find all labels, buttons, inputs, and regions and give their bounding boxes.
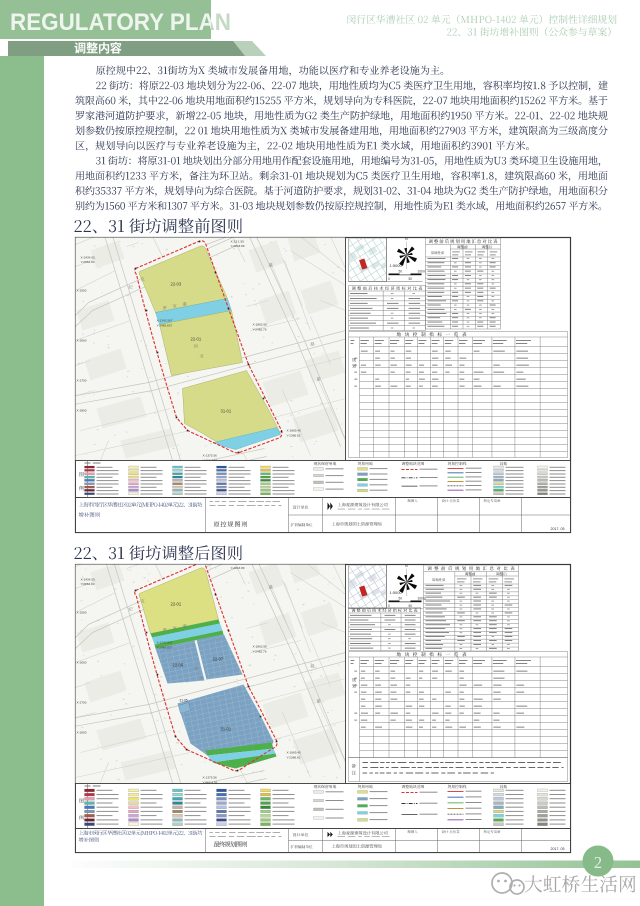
svg-text:X-2434.50: X-2434.50 [81, 578, 96, 582]
svg-text:31-05: 31-05 [180, 699, 188, 703]
svg-text:22-01: 22-01 [171, 602, 182, 607]
svg-text:X-1863.56: X-1863.56 [253, 645, 268, 649]
svg-text:50: 50 [409, 604, 413, 608]
svg-text:X-1242.567: X-1242.567 [157, 641, 173, 645]
svg-text:Y-2862.00: Y-2862.00 [81, 260, 95, 264]
svg-text:Y-2386.62: Y-2386.62 [287, 756, 301, 760]
svg-text:Y-2843.89: Y-2843.89 [231, 566, 245, 570]
svg-text:X-2600: X-2600 [77, 339, 87, 343]
svg-text:22-07: 22-07 [213, 657, 224, 662]
svg-text:N: N [405, 237, 408, 241]
svg-text:X-23.1.50: X-23.1.50 [231, 240, 245, 244]
svg-text:X-1242.567: X-1242.567 [157, 319, 173, 323]
svg-text:X-2800: X-2800 [77, 409, 87, 413]
svg-text:0: 0 [388, 604, 390, 608]
svg-text:0: 0 [388, 277, 390, 281]
svg-text:X-2500: X-2500 [77, 289, 87, 293]
svg-text:X-1865.45: X-1865.45 [287, 751, 302, 755]
svg-text:50: 50 [399, 596, 403, 600]
svg-text:Y-2843.89: Y-2843.89 [231, 244, 245, 248]
svg-text:Y-2465.837: Y-2465.837 [157, 646, 173, 650]
svg-text:1:5000: 1:5000 [390, 590, 403, 595]
svg-text:22-03: 22-03 [171, 282, 182, 287]
svg-text:50: 50 [399, 269, 403, 273]
svg-text:Y-2862.00: Y-2862.00 [81, 582, 95, 586]
svg-text:2017. 05: 2017. 05 [551, 847, 565, 851]
svg-text:Y-2482.76: Y-2482.76 [253, 328, 267, 332]
svg-text:X-1865.45: X-1865.45 [287, 429, 302, 433]
svg-text:Y-2386.62: Y-2386.62 [287, 434, 301, 438]
svg-text:X-1375.56: X-1375.56 [203, 776, 218, 780]
svg-text:Y-2465.837: Y-2465.837 [157, 324, 173, 328]
svg-text:2017. 05: 2017. 05 [551, 527, 565, 531]
svg-text:REGULATORY PLAN: REGULATORY PLAN [10, 9, 231, 36]
svg-text:X-2700: X-2700 [77, 379, 87, 383]
svg-text:X-1863.56: X-1863.56 [253, 323, 268, 327]
svg-text:22-01: 22-01 [191, 337, 202, 342]
svg-text:X-2500: X-2500 [77, 611, 87, 615]
svg-text:1:5000: 1:5000 [390, 263, 403, 268]
svg-text:N: N [405, 564, 408, 568]
svg-text:22-06: 22-06 [173, 663, 184, 668]
svg-text:X-1375.56: X-1375.56 [203, 454, 218, 458]
svg-text:2: 2 [594, 853, 602, 872]
svg-text:X-2700: X-2700 [77, 701, 87, 705]
svg-text:31-01: 31-01 [221, 727, 232, 732]
svg-text:31-01: 31-01 [221, 409, 232, 414]
svg-text:100m: 100m [418, 269, 426, 273]
svg-text:X-2434.50: X-2434.50 [81, 256, 96, 260]
svg-text:X-2600: X-2600 [77, 661, 87, 665]
svg-text:Y-2482.76: Y-2482.76 [253, 650, 267, 654]
svg-text:X-2800: X-2800 [77, 731, 87, 735]
svg-text:50: 50 [409, 277, 413, 281]
